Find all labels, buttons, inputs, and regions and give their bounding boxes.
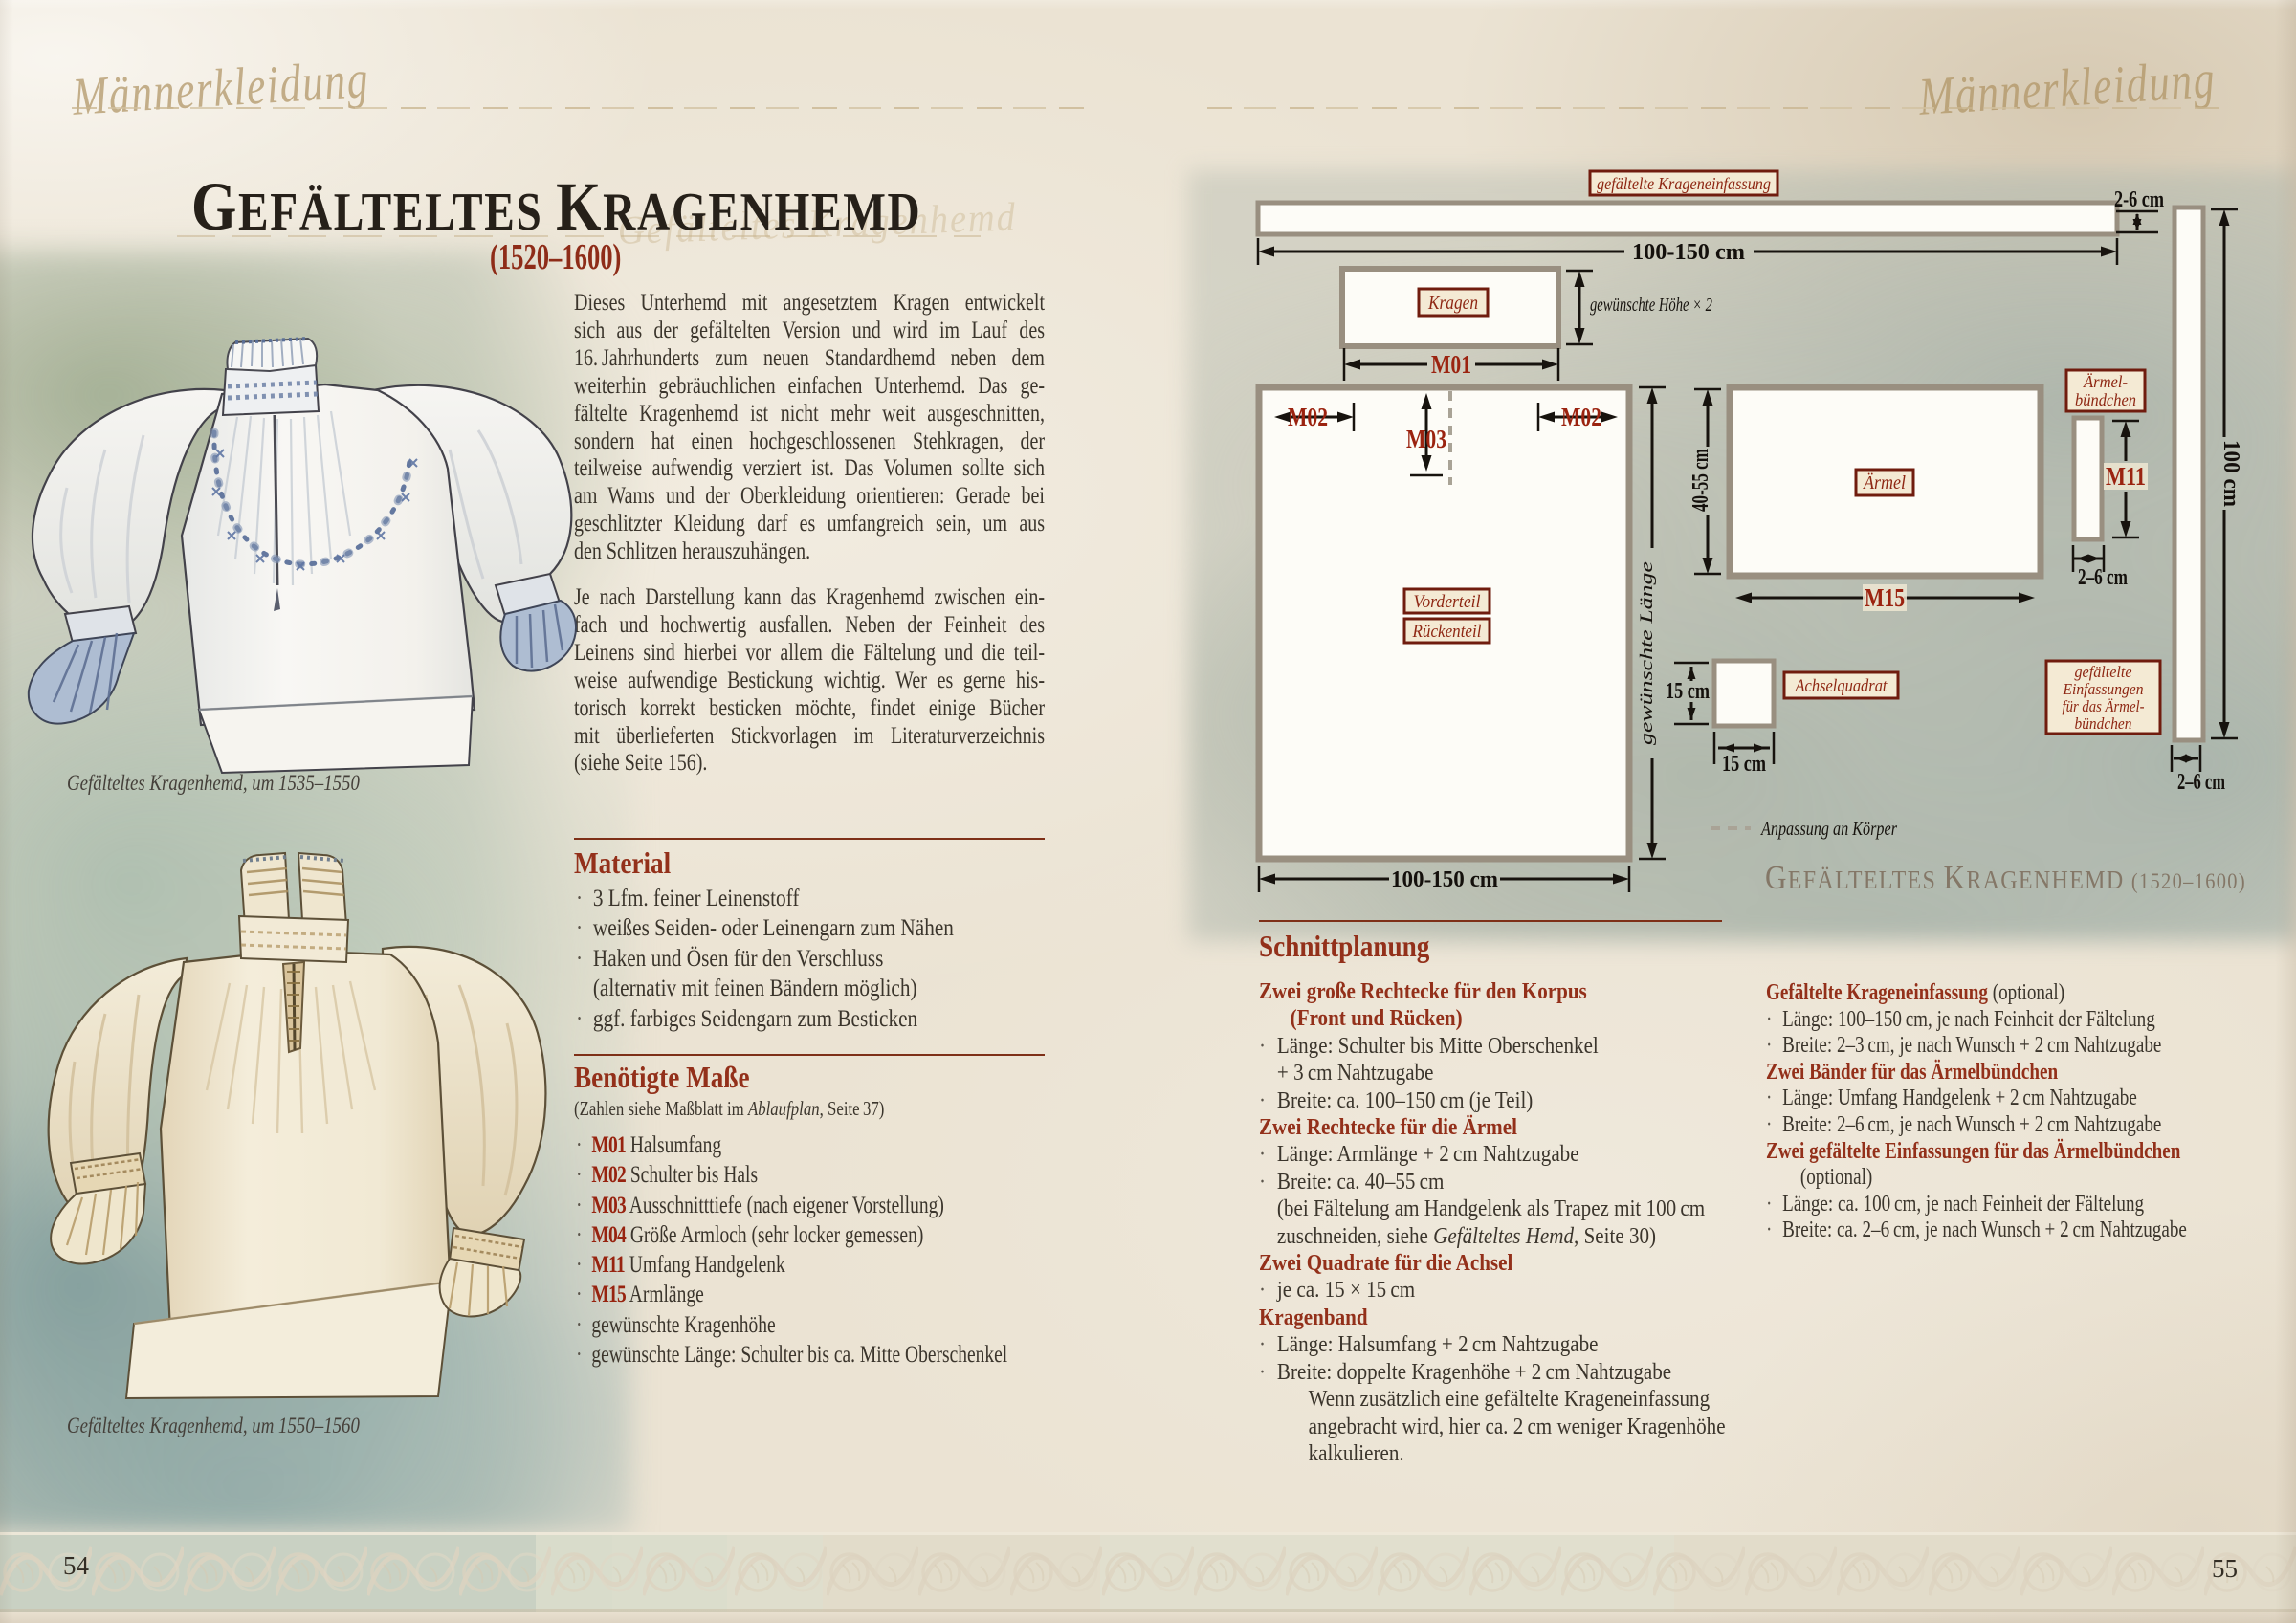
svg-text:M15: M15 bbox=[1865, 583, 1905, 612]
svg-text:M02: M02 bbox=[1288, 403, 1328, 431]
svg-text:Rückenteil: Rückenteil bbox=[1412, 622, 1482, 642]
svg-text:100 cm: 100 cm bbox=[2219, 440, 2243, 507]
svg-text:GEFÄLTELTES KRAGENHEMD (1520–1: GEFÄLTELTES KRAGENHEMD (1520–1600) bbox=[1765, 859, 2246, 896]
svg-text:Vorderteil: Vorderteil bbox=[1414, 592, 1481, 612]
svg-text:bündchen: bündchen bbox=[2075, 714, 2132, 733]
svg-text:M11: M11 bbox=[2106, 462, 2146, 491]
svg-text:M01: M01 bbox=[1431, 350, 1471, 379]
svg-text:15 cm: 15 cm bbox=[1666, 679, 1710, 704]
svg-text:für das Ärmel-: für das Ärmel- bbox=[2063, 697, 2145, 715]
svg-text:Kragen: Kragen bbox=[1427, 293, 1478, 314]
svg-text:40-55 cm: 40-55 cm bbox=[1689, 449, 1713, 512]
svg-text:M02: M02 bbox=[1561, 403, 1601, 431]
svg-text:100-150 cm: 100-150 cm bbox=[1391, 867, 1498, 892]
svg-text:gefältelte: gefältelte bbox=[2075, 663, 2132, 681]
svg-text:gewünschte Länge: gewünschte Länge bbox=[1637, 561, 1657, 745]
svg-text:Ärmel: Ärmel bbox=[1862, 472, 1906, 493]
svg-text:Ärmel-: Ärmel- bbox=[2083, 372, 2128, 391]
svg-text:gewünschte Höhe × 2: gewünschte Höhe × 2 bbox=[1590, 295, 1712, 316]
svg-text:bündchen: bündchen bbox=[2075, 390, 2136, 409]
svg-text:M03: M03 bbox=[1406, 425, 1446, 453]
svg-text:100-150 cm: 100-150 cm bbox=[1632, 240, 1745, 265]
svg-text:Anpassung an Körper: Anpassung an Körper bbox=[1759, 819, 1897, 840]
svg-text:Achselquadrat: Achselquadrat bbox=[1794, 676, 1888, 696]
svg-text:Einfassungen: Einfassungen bbox=[2063, 680, 2144, 698]
svg-text:2–6 cm: 2–6 cm bbox=[2177, 770, 2225, 795]
svg-text:2–6 cm: 2–6 cm bbox=[2078, 565, 2128, 590]
svg-text:15 cm: 15 cm bbox=[1722, 752, 1766, 777]
svg-text:gefältelte Krageneinfassung: gefältelte Krageneinfassung bbox=[1597, 174, 1771, 193]
svg-text:2-6 cm: 2-6 cm bbox=[2114, 187, 2164, 212]
